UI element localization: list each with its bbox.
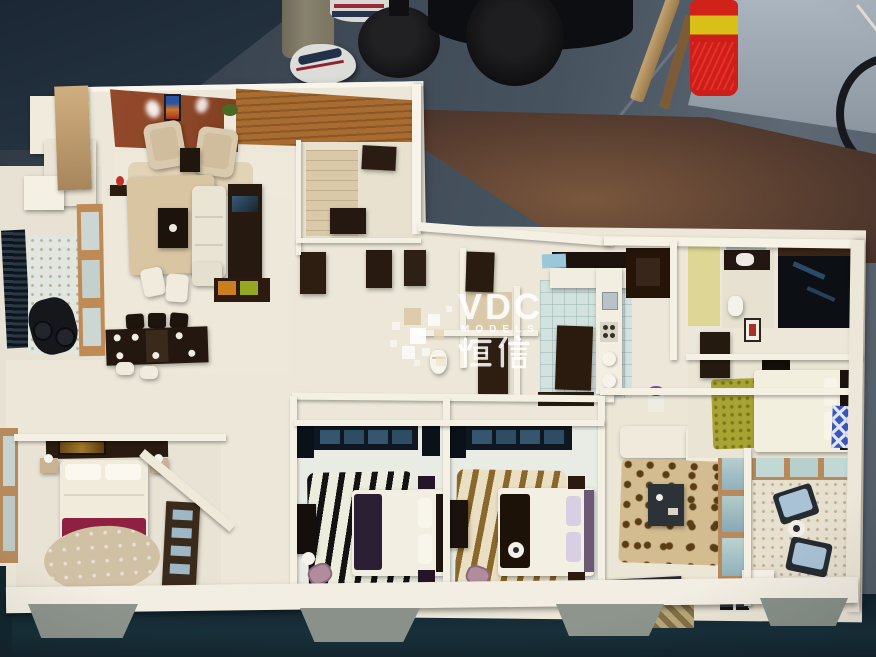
window-ledge <box>28 604 138 638</box>
fire-extinguisher-coil <box>692 42 734 90</box>
counter-round-item <box>602 352 616 366</box>
watermark-pixel-logo <box>390 298 460 368</box>
watermark: VDC MODELS 恒信 <box>390 286 580 378</box>
porch-wood-plank <box>54 85 92 190</box>
zebra-bedroom <box>294 424 446 600</box>
logo-square-11 <box>446 306 452 312</box>
media-room-glint <box>792 261 825 279</box>
burner-2 <box>610 325 615 330</box>
red-flower <box>116 176 124 186</box>
dining-chair-dark <box>125 313 144 329</box>
bed-zebra-room <box>352 490 446 576</box>
dining-chair-white <box>116 362 134 375</box>
coffee-table <box>158 208 188 248</box>
chair-cushion-blue-2 <box>791 542 827 570</box>
family-coffee-table <box>648 484 684 526</box>
window-glass-slit-7 <box>520 430 540 444</box>
nightstand-dark <box>418 476 435 489</box>
bedroom-wall-vertical-2 <box>443 398 450 602</box>
window-pane <box>81 212 100 250</box>
bedroom-wall-vertical <box>290 396 297 602</box>
window-glass-slit-8 <box>544 430 564 444</box>
artwork-orange <box>218 281 236 295</box>
window-ledge-3 <box>556 604 664 636</box>
master-window-glass-2 <box>3 496 15 551</box>
master-pillow-2 <box>105 464 141 480</box>
sofa-cushion-line <box>195 216 223 218</box>
hall-wall-h <box>296 238 421 243</box>
burner <box>603 325 608 330</box>
tv-screen <box>232 196 258 212</box>
place-setting-6 <box>188 350 195 357</box>
wardrobe <box>361 145 396 171</box>
window-glass-slit-5 <box>472 430 492 444</box>
master-window-glass <box>3 436 15 486</box>
bathroom-sink <box>736 253 754 266</box>
dining-chair-dark-2 <box>148 313 166 328</box>
dark-media-room <box>778 244 856 328</box>
round-stool-white <box>508 542 524 558</box>
dark-wood-nook <box>626 248 672 298</box>
green-room-top-wall <box>686 354 862 360</box>
window-pane-2 <box>82 260 101 298</box>
duvet-fold <box>64 494 144 496</box>
watermark-chinese-glyph-heng <box>458 334 492 370</box>
place-setting-3 <box>176 332 183 339</box>
curtain-dark-2 <box>422 426 440 456</box>
sunroom-table <box>788 520 805 537</box>
watermark-chinese-text: 恒信 <box>390 286 391 287</box>
watermark-chinese-glyph-xin <box>496 334 530 370</box>
kitchen-sink <box>602 292 618 310</box>
window-band <box>314 424 418 450</box>
place-setting <box>114 334 121 341</box>
coffee-table-bowl <box>169 224 177 232</box>
logo-square-6 <box>390 340 397 347</box>
window-pane-3 <box>82 308 101 346</box>
coffee-cup <box>656 494 663 501</box>
dark-door-2 <box>366 250 392 288</box>
logo-square-5 <box>434 330 444 340</box>
logo-square <box>404 308 421 325</box>
bike-wheel <box>31 319 55 343</box>
pillow-lilac <box>566 496 581 526</box>
window-glass-slit-2 <box>344 430 364 444</box>
nightstand-dark-3 <box>568 476 585 489</box>
master-window-frame <box>0 428 18 563</box>
pillow <box>418 498 432 528</box>
burner-4 <box>610 333 615 338</box>
right-horizontal-wall <box>600 388 860 395</box>
sofa-cushion-line-2 <box>195 244 223 246</box>
place-setting-2 <box>132 334 139 341</box>
stool-center-dot <box>513 547 519 553</box>
pillow-lilac-2 <box>566 532 581 562</box>
fire-extinguisher <box>690 0 738 96</box>
armchair-2-cushion <box>200 132 232 170</box>
right-top-section <box>686 240 858 336</box>
magazine <box>668 508 678 515</box>
dresser-drawer <box>172 510 192 521</box>
small-framed-picture <box>744 318 761 342</box>
dresser <box>162 501 201 591</box>
yellow-room <box>688 246 720 326</box>
curtain-dark-3 <box>448 424 466 458</box>
master-top-wall <box>14 434 226 441</box>
window-glass-slit-4 <box>392 430 412 444</box>
master-painting <box>58 440 106 455</box>
window-ledge-2 <box>300 608 420 642</box>
logo-square-10 <box>436 356 446 366</box>
bedrooms-top-wall <box>294 420 604 426</box>
side-table <box>180 148 200 172</box>
armchair-cushion <box>149 126 180 162</box>
counter-round-item-2 <box>602 374 616 388</box>
brown-zebra-bedroom <box>446 424 600 602</box>
bed-brown-room <box>498 488 594 576</box>
kitchen-stove <box>600 322 618 342</box>
kitchen-right-wall <box>670 240 677 360</box>
plant-leaves <box>222 104 238 116</box>
pillow-2 <box>418 534 432 564</box>
dresser-drawer-3 <box>170 545 190 556</box>
bathroom-counter <box>724 250 770 270</box>
photo-apartment-model: VDC MODELS 恒信 <box>0 0 876 657</box>
nook-table <box>636 258 660 286</box>
watermark-brand: VDC <box>458 286 543 328</box>
chair-cushion-blue <box>778 488 813 518</box>
floor-lamp <box>302 552 315 565</box>
bedside-lamp <box>44 454 53 463</box>
window-glass-slit-6 <box>496 430 516 444</box>
curtain-dark <box>296 424 314 458</box>
tv-unit-small <box>294 504 316 554</box>
media-room-glint-2 <box>806 286 835 302</box>
sneaker <box>290 44 356 84</box>
window-glass-slit <box>320 430 340 444</box>
balcony-window-frames <box>77 204 106 356</box>
notch-left-wall <box>412 84 421 234</box>
stool-stem-left <box>389 0 409 16</box>
sneaker-second-stripe-red <box>334 4 384 8</box>
logo-square-7 <box>402 346 415 359</box>
dresser-drawer-4 <box>170 563 190 574</box>
place-setting-4 <box>116 352 123 359</box>
media-wall-unit <box>228 184 262 280</box>
dresser-drawer-2 <box>171 528 191 539</box>
window-glass-slit-3 <box>368 430 388 444</box>
bathroom-toilet <box>728 296 743 316</box>
logo-square-4 <box>410 328 426 344</box>
picture-red-center <box>749 324 756 336</box>
master-pillow <box>65 464 101 480</box>
dark-door <box>300 252 326 294</box>
purple-throw <box>354 494 382 570</box>
burner-3 <box>603 333 608 338</box>
artwork-green <box>240 281 258 295</box>
logo-square-8 <box>422 348 430 356</box>
logo-square-2 <box>428 314 440 326</box>
logo-square-9 <box>414 360 420 366</box>
logo-square-3 <box>392 322 400 330</box>
dining-table <box>105 326 208 366</box>
kitchen-counter-v <box>596 268 622 394</box>
white-armchair-2 <box>165 273 189 302</box>
headboard-lilac <box>584 490 594 572</box>
dining-chair-white-2 <box>140 366 158 379</box>
family-window-pane <box>722 454 746 490</box>
wardrobe-2 <box>330 208 366 234</box>
family-window-pane-2 <box>722 496 746 532</box>
window-ledge-4 <box>760 598 848 626</box>
wall-painting <box>164 94 181 121</box>
window-band-2 <box>466 424 572 450</box>
sunroom-table-top <box>793 525 800 532</box>
